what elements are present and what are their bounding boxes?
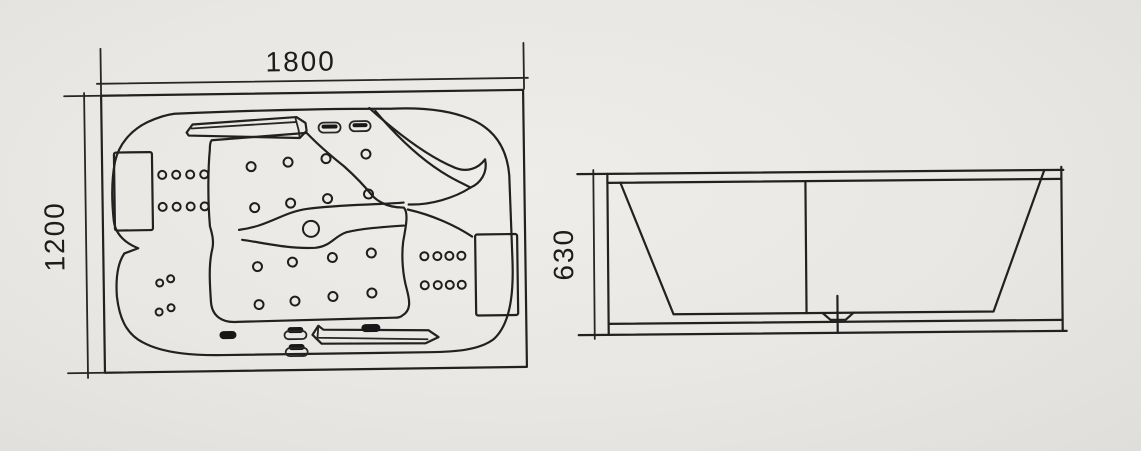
contour-line [242,226,404,249]
extension-line [68,373,105,374]
headrest-top [186,117,306,140]
handle-slot-opening [353,123,368,127]
seat-edge [408,188,470,205]
jet-hole [323,194,332,203]
extension-line [64,96,101,97]
floor-line [579,331,1067,335]
jet-hole [288,258,297,267]
jet-hole [167,275,174,282]
handle-slots [318,121,370,133]
rim-inner-line [607,179,1061,183]
drawing-sheet: 1800 1200 [0,0,1141,451]
jet-hole [159,203,167,211]
jet-hole [361,150,370,159]
jet-hole [250,203,259,212]
jet-hole [168,304,175,311]
jet-hole [445,252,453,260]
width-dimension-label: 1800 [265,45,336,77]
rim-top-line [577,170,1063,174]
jet-hole [290,297,299,306]
jet-hole [328,253,337,262]
height-dimension: 630 [547,170,594,339]
dimension-line [84,93,88,378]
jet-hole [253,262,262,271]
handle-slot-opening [322,124,338,128]
drain [303,221,319,237]
left-pillow [114,152,153,231]
dimension-line [593,170,594,339]
jet-hole [446,281,454,289]
width-dimension: 1800 [96,43,528,95]
jet-hole [367,288,376,297]
right-edge [1061,167,1062,331]
control-knob [361,324,380,332]
contour-line [239,203,404,230]
drain-fitting [822,296,853,333]
top-view: 1800 1200 [36,43,532,379]
jet-hole [367,248,376,257]
seat-edge [470,159,486,187]
extension-line [100,49,101,95]
control-knob [287,327,303,333]
dimension-line [97,78,528,84]
corner-seat [369,106,486,238]
jet-hole [283,158,292,167]
seat-contours [239,203,405,249]
left-edge [607,174,608,335]
control-knob [289,344,305,350]
basin-divider [805,181,806,313]
jet-hole [434,281,442,289]
jet-hole [457,252,465,260]
jet-hole [421,281,429,289]
jet-hole [173,203,181,211]
jet-hole [254,300,263,309]
left-jet-group [158,170,209,211]
jet-hole [187,202,195,210]
jet-hole [200,170,208,178]
height-dimension-label: 630 [548,228,579,281]
jet-hole [247,162,256,171]
jet-hole [321,154,330,163]
jet-hole [420,252,428,260]
jet-hole [328,292,337,301]
jet-hole [433,252,441,260]
control-knob [219,331,236,339]
depth-dimension-label: 1200 [39,201,71,272]
bathtub-technical-drawing: 1800 1200 [0,0,1141,451]
jet-hole [286,199,295,208]
side-view: 630 [547,166,1066,340]
jet-hole [458,281,466,289]
jet-hole [156,308,163,315]
side-jet-pairs [155,275,175,315]
seat-edge [408,209,472,238]
jet-hole [186,170,194,178]
basin-section [620,170,1045,315]
jet-hole [158,171,166,179]
depth-dimension: 1200 [37,93,105,379]
basin-profile [620,170,1045,315]
extension-line [523,43,524,89]
headrest-fold [295,118,299,138]
jet-hole [156,279,163,286]
right-jet-group [420,252,466,290]
jet-hole [172,171,180,179]
